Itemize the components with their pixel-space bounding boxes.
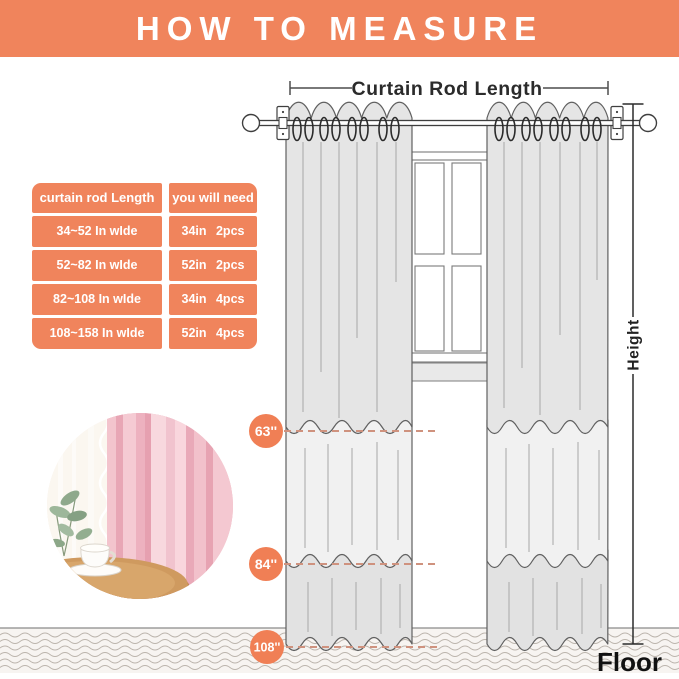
marker-label-108: 108'' (254, 641, 281, 655)
size-table-row-2-rod: 52~82 In wIde (32, 250, 162, 281)
product-photo (6, 413, 233, 619)
marker-label-84: 84'' (255, 556, 277, 572)
size-table-row-4-need: 52in 4pcs (169, 318, 257, 349)
size-table-row-1-rod: 34~52 In wIde (32, 216, 162, 247)
rod-finial-left (243, 115, 260, 132)
curtain-right-tier-84 (487, 420, 608, 568)
window (404, 152, 496, 381)
size-table-row-3-rod: 82~108 In wIde (32, 284, 162, 315)
how-to-measure-infographic: Curtain Rod Length Height 63'' 84'' 108'… (0, 0, 679, 679)
curtain-left-tier-63 (286, 102, 412, 433)
rod-finial-right (640, 115, 657, 132)
size-table-row-2-need: 52in 2pcs (169, 250, 257, 281)
floor-label: Floor (597, 647, 662, 677)
size-table-row-3-need: 34in 4pcs (169, 284, 257, 315)
size-table-header-you-will-need: you will need (169, 183, 257, 213)
size-table-row-1-need: 34in 2pcs (169, 216, 257, 247)
height-measure (623, 104, 644, 644)
rod-length-label: Curtain Rod Length (352, 78, 543, 100)
marker-label-63: 63'' (255, 423, 277, 439)
size-table-row-4-rod: 108~158 In wIde (32, 318, 162, 349)
size-table: curtain rod Length you will need 34~52 I… (32, 183, 257, 349)
size-table-header-rod-length: curtain rod Length (32, 183, 162, 213)
height-label: Height (626, 319, 643, 370)
curtain-right-tier-63 (487, 102, 608, 433)
window-sill (406, 363, 494, 381)
